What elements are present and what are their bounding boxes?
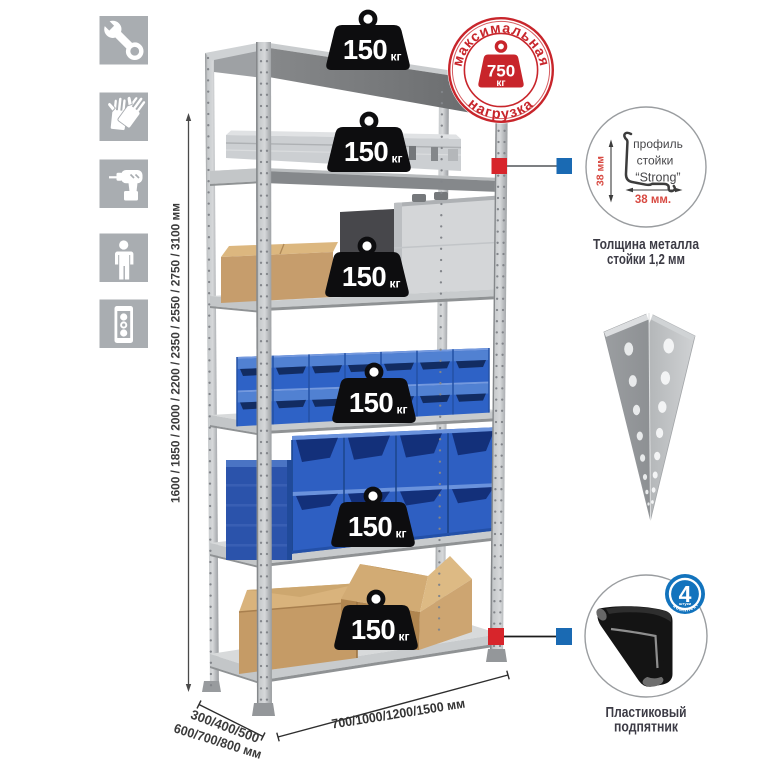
svg-text:профиль: профиль (633, 137, 683, 151)
svg-text:штуки: штуки (679, 601, 692, 606)
svg-text:кг: кг (496, 78, 505, 89)
svg-text:38 мм.: 38 мм. (635, 194, 671, 206)
svg-text:“Strong”: “Strong” (635, 171, 680, 185)
svg-text:38 мм: 38 мм (595, 156, 607, 186)
svg-text:подпятник: подпятник (614, 719, 678, 736)
svg-text:1600 / 1850 / 2000 / 2200 / 23: 1600 / 1850 / 2000 / 2200 / 2350 / 2550 … (169, 203, 183, 503)
svg-text:стойки 1,2 мм: стойки 1,2 мм (607, 251, 685, 268)
svg-text:стойки: стойки (637, 154, 674, 168)
